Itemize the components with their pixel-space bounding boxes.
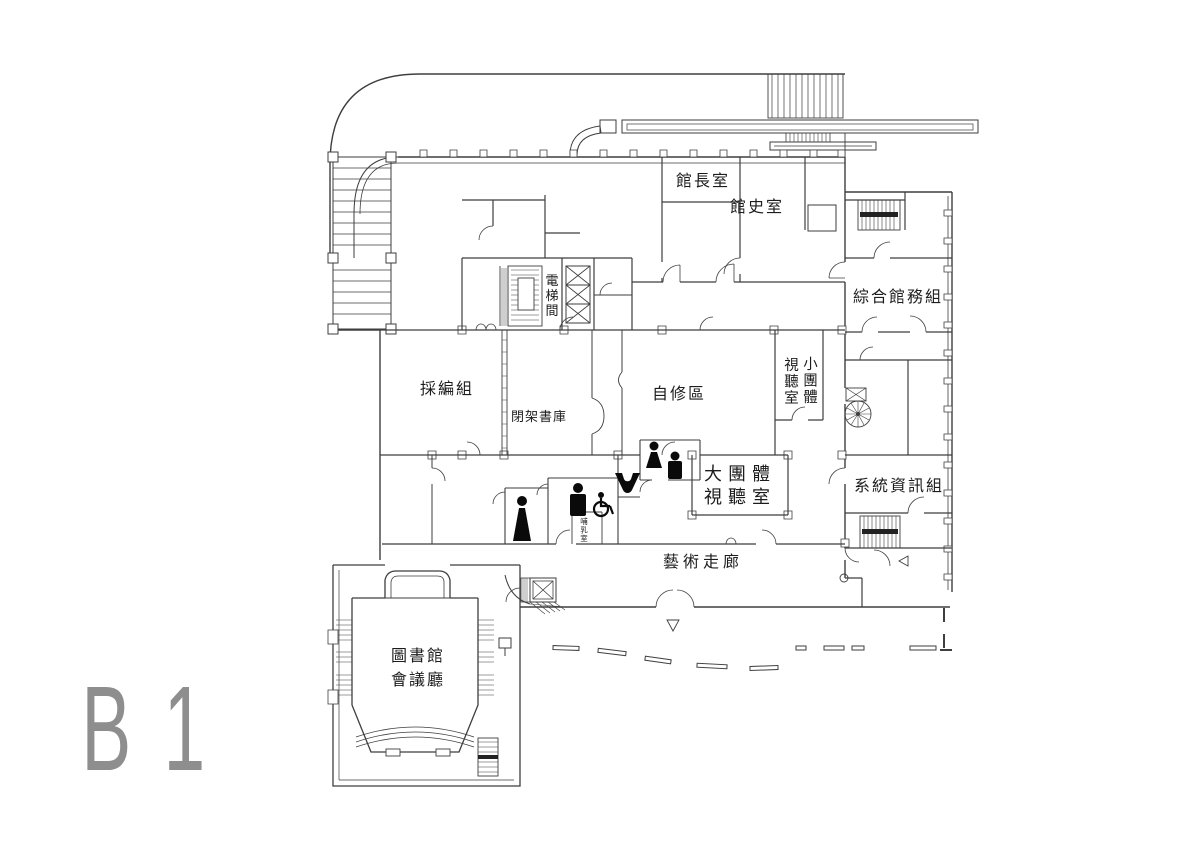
room-label-acquisitions: 採編組: [420, 380, 474, 398]
floorplan-page: 館長室 館史室 綜合館務組 電梯間 採編組 自修區 小團體 視聽室 閉架書庫 大…: [0, 0, 1200, 849]
room-label-closed-stacks: 閉架書庫: [511, 409, 567, 424]
room-label-small-av-left: 視聽室: [782, 357, 798, 407]
room-label-history-room: 館史室: [730, 198, 784, 216]
room-label-systems-info: 系統資訊組: [854, 477, 944, 495]
floor-plan-svg: 館長室 館史室 綜合館務組 電梯間 採編組 自修區 小團體 視聽室 閉架書庫 大…: [0, 0, 1200, 849]
room-label-director-office: 館長室: [676, 172, 730, 190]
room-label-small-av-right: 小團體: [801, 356, 817, 406]
floor-label-group: B1: [81, 662, 237, 797]
floor-label: B1: [81, 662, 237, 797]
room-label-large-av-line1: 大團體: [704, 464, 776, 484]
room-label-self-study: 自修區: [652, 385, 706, 403]
room-label-general-services: 綜合館務組: [853, 288, 943, 306]
room-label-elevator-hall: 電梯間: [544, 274, 559, 319]
room-label-nursing-room: 哺乳室: [579, 516, 588, 543]
room-label-conference-line1: 圖書館: [391, 647, 445, 665]
room-label-art-corridor: 藝術走廊: [663, 553, 743, 571]
room-label-conference-line2: 會議廳: [391, 670, 445, 689]
room-label-large-av-line2: 視聽室: [704, 487, 776, 507]
